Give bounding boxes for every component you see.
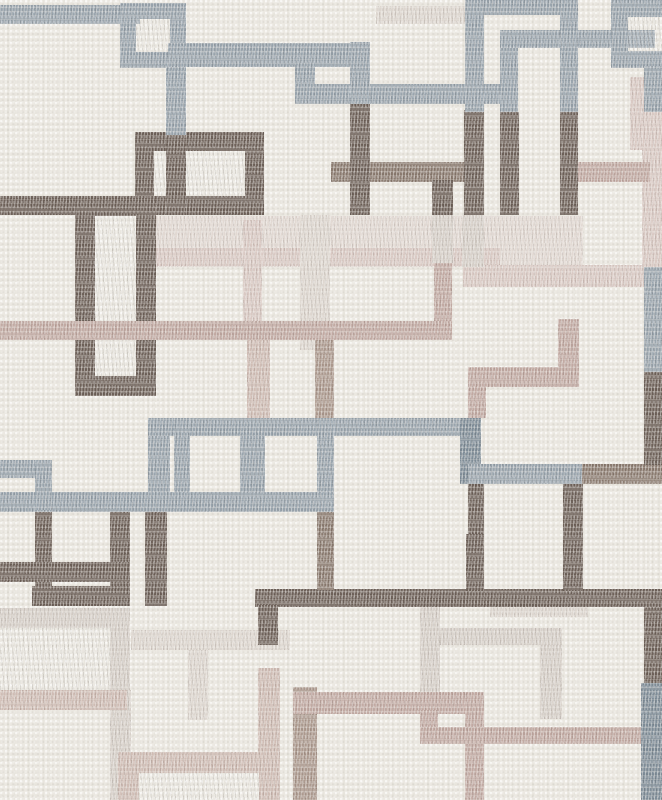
- pattern-shape-vert-x560-brown: [560, 112, 578, 215]
- pattern-shape-vert-x350-top: [350, 42, 370, 104]
- pattern-shape-vert-x563-brown2: [563, 534, 583, 591]
- pattern-shape-band-y589: [255, 589, 662, 607]
- pattern-shape-vert-x500-top: [500, 48, 518, 112]
- pattern-shape-band-y464-right: [582, 464, 662, 484]
- pattern-shape-frame-tall-left: [75, 196, 156, 396]
- pattern-shape-band-y586: [32, 586, 130, 606]
- pattern-shape-band-y690-left: [0, 690, 127, 710]
- pattern-shape-vert-x468-mauve: [468, 387, 486, 418]
- pattern-shape-band-y692: [293, 692, 484, 714]
- pattern-shape-square-top-right: [611, 0, 662, 68]
- pattern-shape-vert-x462-greige: [462, 215, 484, 267]
- pattern-shape-vert-x174: [174, 418, 190, 493]
- pattern-shape-band-y367: [468, 367, 579, 387]
- pattern-shape-vert-x420-greige: [420, 607, 440, 692]
- pattern-shape-vert-x315-taupe2: [315, 339, 334, 418]
- pattern-shape-vert-x240: [240, 436, 265, 493]
- pattern-shape-band-pink-y321: [0, 321, 452, 340]
- pattern-shape-vert-x317-slate: [317, 418, 334, 493]
- pattern-shape-vert-x188-greige: [188, 650, 208, 720]
- pattern-shape-vert-x563-brown3: [563, 484, 583, 534]
- pattern-shape-vert-x35-slate: [35, 460, 52, 510]
- pattern-shape-vert-x468-brown3: [468, 484, 484, 534]
- wallpaper-pattern-swatch: [0, 0, 662, 800]
- pattern-shape-frame-bottom-pink: [118, 752, 280, 800]
- pattern-shape-band-y628-greige: [440, 628, 562, 645]
- pattern-shape-vert-right-upper: [644, 66, 662, 112]
- pattern-shape-vert-x145-brown: [145, 510, 167, 606]
- pattern-shape-vert-b1-inner: [166, 135, 186, 215]
- pattern-shape-vert-x464-brown: [464, 110, 484, 215]
- pattern-shape-vert-x500-brown: [500, 112, 519, 215]
- pattern-shape-vert-right-bottom-slate: [641, 683, 662, 800]
- pattern-shape-vert-x560-top: [560, 15, 578, 112]
- pattern-shape-vert-x465-top: [465, 0, 484, 112]
- pattern-shape-vert-x432-greige: [432, 215, 453, 263]
- pattern-shape-band-top-greige: [376, 6, 465, 24]
- pattern-shape-band-y418: [148, 418, 481, 436]
- pattern-shape-vert-x432-brown: [432, 180, 453, 215]
- pattern-shape-vert-x350-brown: [350, 104, 370, 215]
- pattern-shape-vert-x258-pink: [258, 668, 280, 752]
- pattern-shape-vert-right-brown-mid: [644, 372, 662, 465]
- pattern-shape-right-pink-col: [642, 112, 662, 267]
- pattern-shape-vert-right-brown-low: [644, 607, 662, 683]
- pattern-shape-vert-x166: [166, 67, 186, 135]
- pattern-shape-vert-x558-mauve: [558, 319, 579, 370]
- pattern-shape-vert-x434-mauve: [434, 263, 452, 321]
- pattern-shape-band-y464: [468, 464, 582, 484]
- pattern-shape-vert-right-mid-slate: [644, 267, 662, 372]
- pattern-shape-vert-x540-greige: [540, 645, 562, 719]
- pattern-shape-vert-x465-mauve2: [465, 692, 484, 800]
- pattern-shape-band-y162-right: [578, 162, 650, 182]
- pattern-shape-vert-x247-pink: [247, 339, 270, 418]
- pattern-shape-vert-x258-brown: [258, 605, 278, 645]
- pattern-shape-band-top-left: [0, 5, 140, 24]
- pattern-shape-band-y48: [168, 43, 370, 67]
- pattern-shape-band-y727: [420, 727, 643, 744]
- pattern-shape-vert-x466-brown2: [466, 534, 484, 591]
- pattern-shape-band-y265-palepink: [463, 265, 648, 287]
- pattern-shape-band-y562: [0, 562, 130, 582]
- pattern-shape-vert-x317-taupe: [317, 510, 334, 590]
